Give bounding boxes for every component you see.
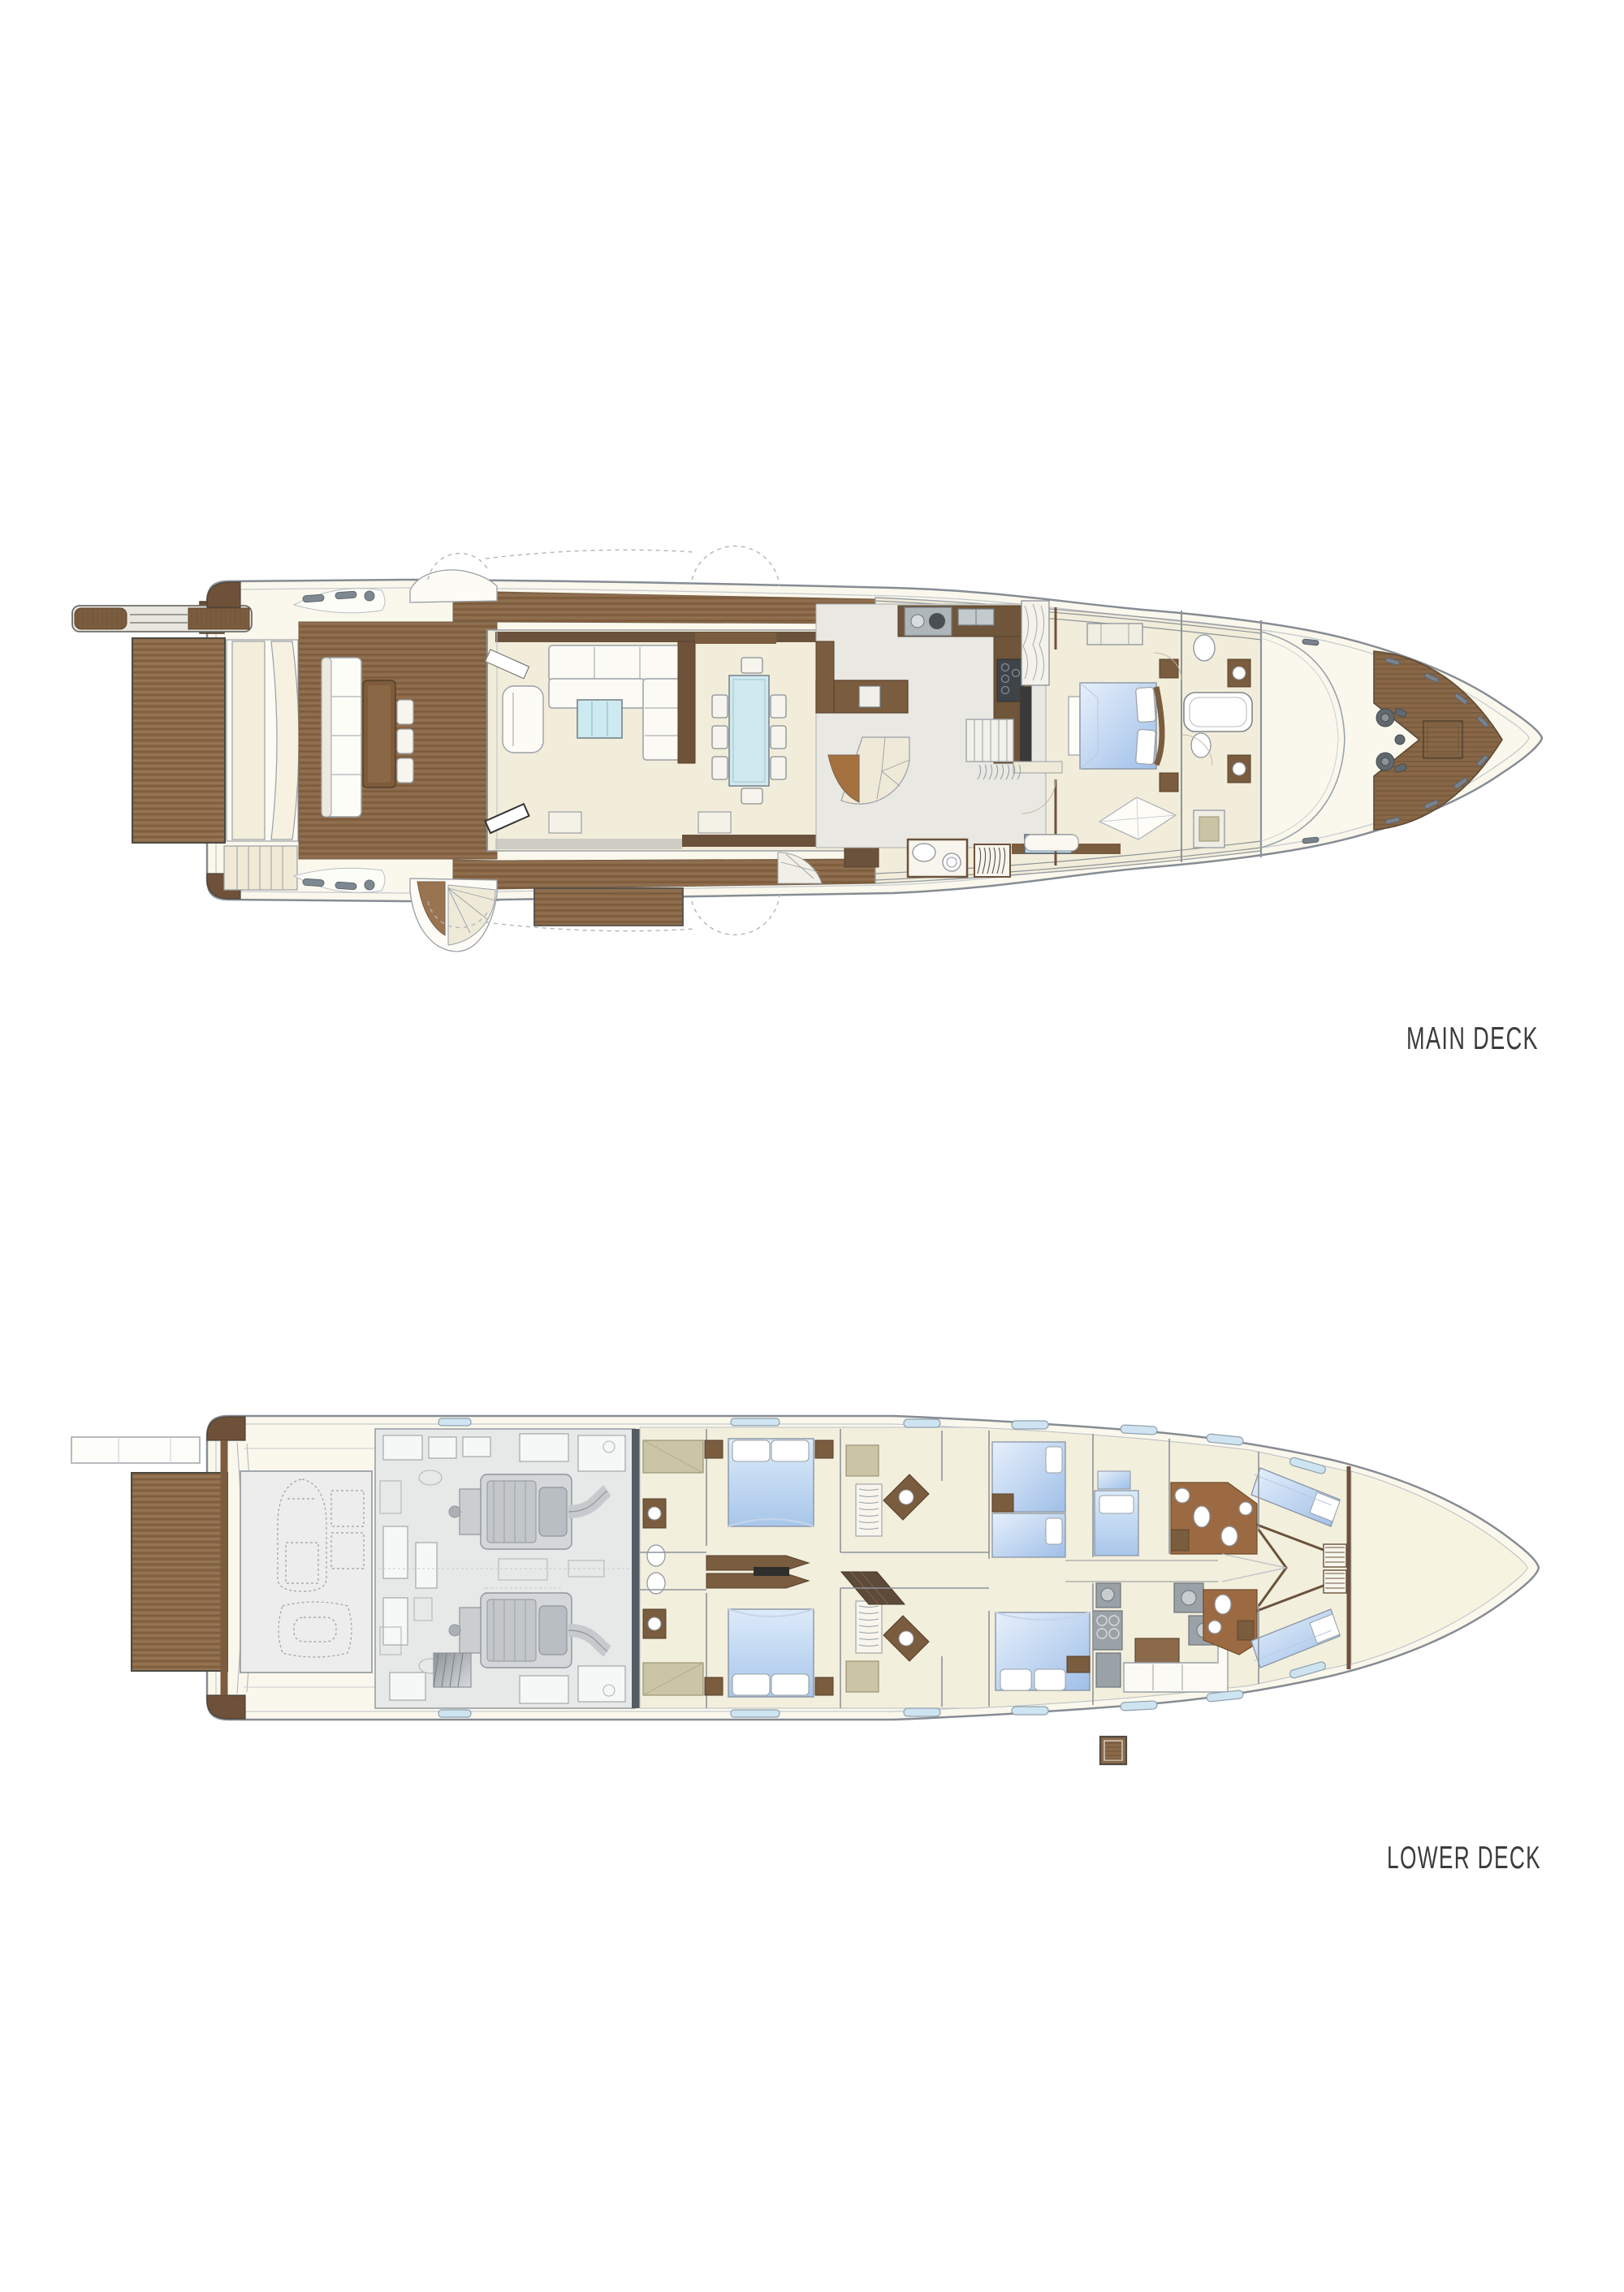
svg-text:LOWER DECK: LOWER DECK	[1387, 1841, 1541, 1875]
svg-text:MAIN DECK: MAIN DECK	[1406, 1021, 1539, 1056]
